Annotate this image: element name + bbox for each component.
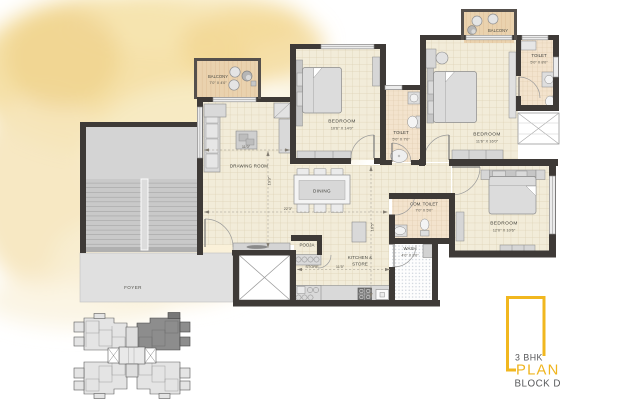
svg-text:COM. TOILET: COM. TOILET	[410, 202, 438, 207]
svg-text:5'0" X 7'0": 5'0" X 7'0"	[392, 138, 410, 142]
svg-text:BEDROOM: BEDROOM	[328, 119, 356, 125]
svg-text:TOILET: TOILET	[531, 53, 547, 58]
svg-text:16'5": 16'5"	[370, 222, 375, 231]
svg-text:BEDROOM: BEDROOM	[490, 221, 518, 227]
svg-text:BALCONY: BALCONY	[208, 74, 228, 79]
svg-text:3 BHK: 3 BHK	[515, 353, 543, 363]
svg-text:7'0" X 4'0": 7'0" X 4'0"	[209, 81, 227, 85]
svg-text:22'3": 22'3"	[284, 206, 293, 211]
svg-text:WASH: WASH	[403, 246, 416, 251]
svg-text:5'0" X 8'0": 5'0" X 8'0"	[530, 61, 548, 65]
svg-text:KITCHEN &: KITCHEN &	[348, 255, 373, 260]
svg-text:DRAWING ROOM: DRAWING ROOM	[230, 164, 268, 169]
svg-text:STORE: STORE	[305, 264, 319, 269]
svg-text:10'6" X 14'0": 10'6" X 14'0"	[331, 126, 354, 131]
svg-text:POOJA: POOJA	[300, 243, 315, 248]
svg-text:11'5": 11'5"	[336, 264, 345, 269]
svg-text:PLAN: PLAN	[516, 363, 559, 379]
svg-text:19'3": 19'3"	[267, 176, 272, 185]
svg-text:4'0" X 8'0": 4'0" X 8'0"	[401, 254, 419, 258]
svg-text:BALCONY: BALCONY	[488, 28, 508, 33]
svg-text:TOILET: TOILET	[393, 130, 409, 135]
svg-text:FOYER: FOYER	[124, 285, 142, 290]
svg-text:STORE: STORE	[352, 262, 368, 267]
svg-text:7'0" X 5'0": 7'0" X 5'0"	[415, 209, 433, 213]
svg-text:BEDROOM: BEDROOM	[473, 132, 501, 138]
svg-text:12'0" X 10'6": 12'0" X 10'6"	[493, 228, 516, 233]
svg-text:11'0": 11'0"	[242, 144, 251, 149]
svg-text:11'6" X 16'0": 11'6" X 16'0"	[476, 139, 499, 144]
svg-text:DINING: DINING	[313, 189, 331, 194]
svg-text:BLOCK D: BLOCK D	[515, 379, 562, 390]
